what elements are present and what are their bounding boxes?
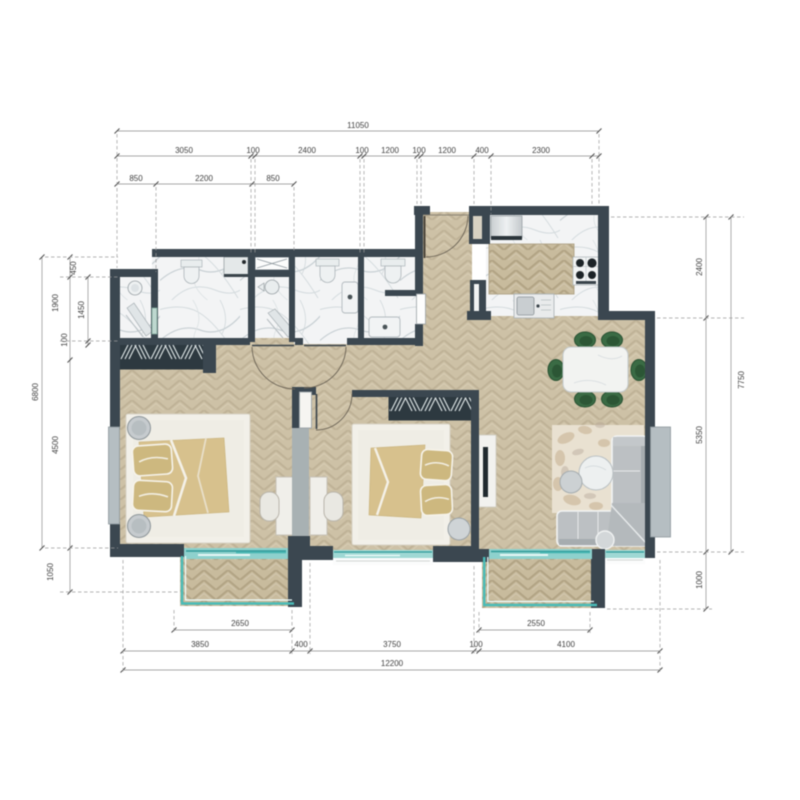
- svg-text:2400: 2400: [695, 258, 704, 276]
- svg-text:1900: 1900: [51, 294, 60, 312]
- svg-text:4100: 4100: [557, 640, 575, 649]
- svg-text:2400: 2400: [298, 146, 316, 155]
- svg-text:1200: 1200: [381, 146, 399, 155]
- svg-text:5350: 5350: [695, 426, 704, 444]
- svg-text:12200: 12200: [381, 659, 404, 668]
- svg-text:400: 400: [294, 640, 308, 649]
- svg-text:7750: 7750: [737, 371, 746, 389]
- svg-text:1050: 1050: [46, 563, 55, 581]
- svg-text:100: 100: [469, 640, 483, 649]
- svg-text:450: 450: [69, 261, 78, 275]
- svg-text:850: 850: [266, 174, 280, 183]
- svg-text:400: 400: [475, 146, 489, 155]
- svg-text:1000: 1000: [695, 571, 704, 589]
- svg-text:100: 100: [246, 146, 260, 155]
- svg-text:1200: 1200: [438, 146, 456, 155]
- svg-text:100: 100: [355, 146, 369, 155]
- svg-text:100: 100: [60, 333, 69, 347]
- svg-text:2200: 2200: [195, 174, 213, 183]
- svg-text:2650: 2650: [231, 619, 249, 628]
- svg-text:3050: 3050: [175, 146, 193, 155]
- svg-text:4500: 4500: [51, 436, 60, 454]
- svg-text:1450: 1450: [77, 301, 86, 319]
- svg-text:3750: 3750: [383, 640, 401, 649]
- svg-text:11050: 11050: [347, 121, 369, 130]
- svg-text:2300: 2300: [532, 146, 550, 155]
- svg-text:100: 100: [412, 146, 426, 155]
- svg-text:850: 850: [129, 174, 143, 183]
- svg-text:3850: 3850: [191, 640, 209, 649]
- svg-text:6800: 6800: [31, 383, 40, 401]
- svg-text:2550: 2550: [527, 619, 545, 628]
